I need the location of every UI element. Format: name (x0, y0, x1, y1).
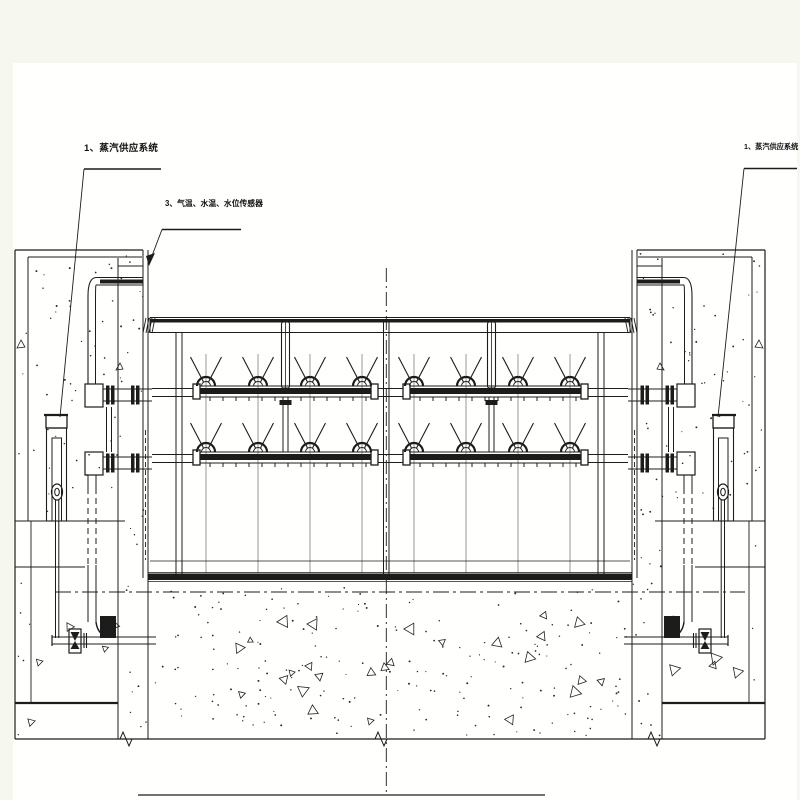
label-steam-supply-right: 1、蒸汽供应系统 (744, 142, 798, 152)
section-drawing (0, 0, 800, 800)
drawing-canvas: 1、蒸汽供应系统 3、气温、水温、水位传感器 1、蒸汽供应系统 (0, 0, 800, 800)
paper-sheet (13, 63, 797, 800)
label-steam-supply-left: 1、蒸汽供应系统 (84, 140, 158, 154)
label-sensors: 3、气温、水温、水位传感器 (165, 198, 263, 209)
